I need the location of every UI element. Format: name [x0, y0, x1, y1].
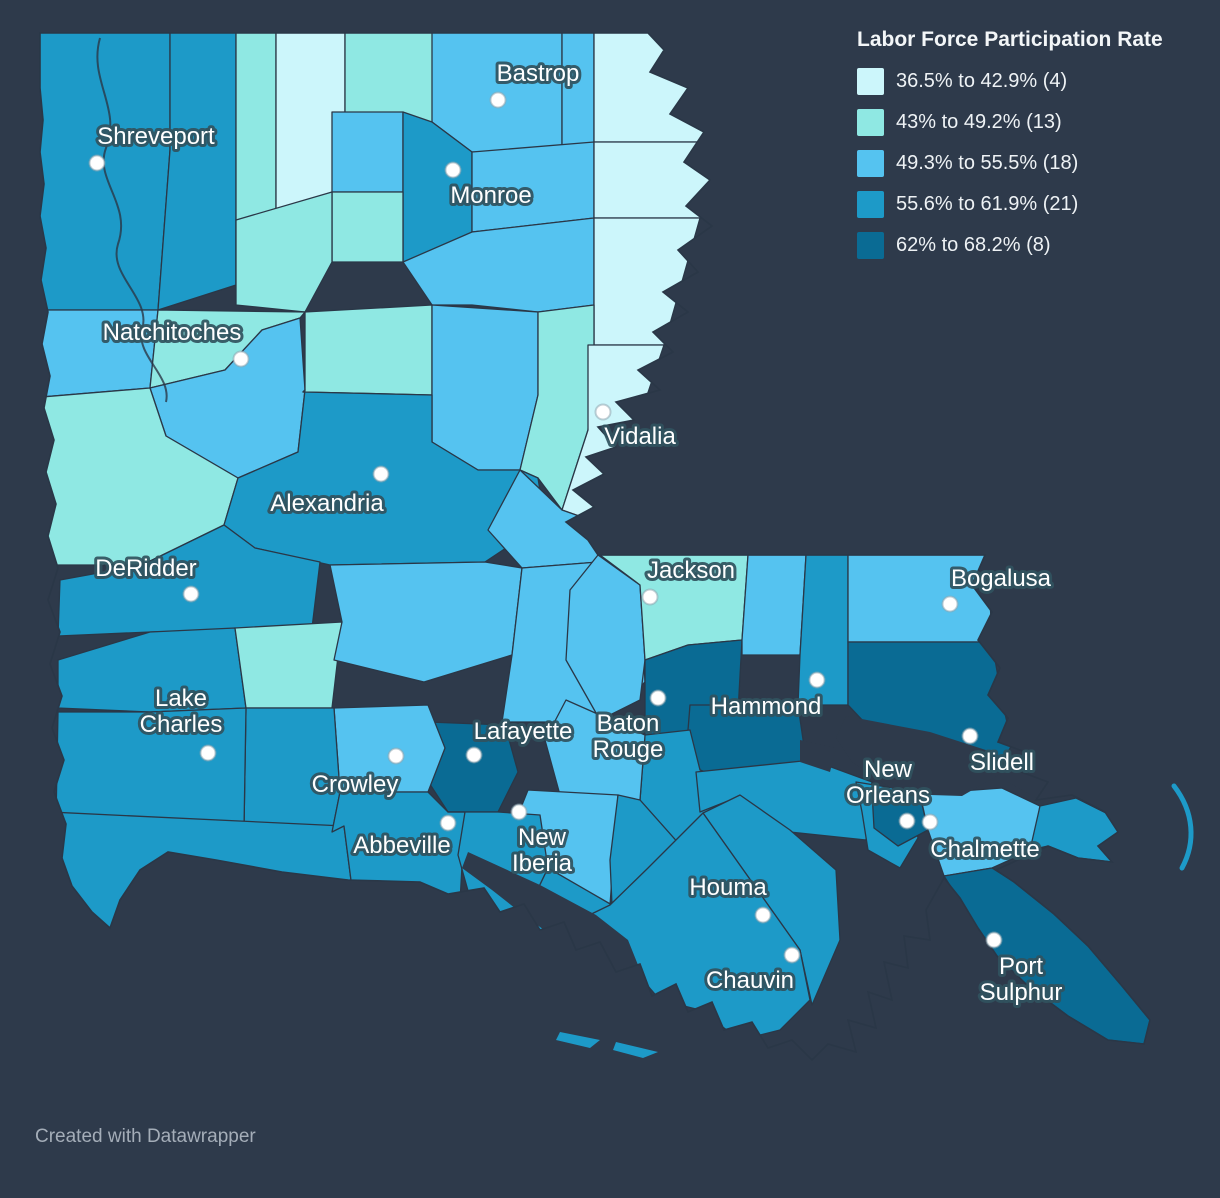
city-dot[interactable]: [184, 587, 199, 602]
parish-region[interactable]: [158, 25, 236, 310]
parish-region[interactable]: [432, 25, 562, 152]
legend-swatch-1: [857, 68, 884, 95]
parish-region[interactable]: [50, 812, 352, 940]
city-label: Jackson: [647, 557, 735, 584]
parish-region[interactable]: [944, 868, 1150, 1044]
legend-item: 55.6% to 61.9% (21): [857, 191, 1217, 218]
datawrapper-credit: Created with Datawrapper: [35, 1126, 256, 1148]
city-dot[interactable]: [810, 673, 825, 688]
city-label: Lafayette: [474, 718, 573, 745]
city-dot[interactable]: [201, 746, 216, 761]
city-dot[interactable]: [446, 163, 461, 178]
parish-region[interactable]: [1030, 798, 1120, 862]
city-label: Baton: [597, 710, 660, 737]
parish-region[interactable]: [303, 305, 432, 395]
city-label: New: [864, 756, 913, 783]
parish-region[interactable]: [235, 622, 342, 708]
legend-label-5: 62% to 68.2% (8): [896, 232, 1051, 259]
barrier-island: [613, 1042, 658, 1058]
legend-label-2: 43% to 49.2% (13): [896, 109, 1062, 136]
legend: Labor Force Participation Rate 36.5% to …: [857, 28, 1217, 273]
city-dot[interactable]: [234, 352, 249, 367]
city-dot[interactable]: [900, 814, 915, 829]
city-label: Iberia: [512, 850, 573, 877]
city-label: Sulphur: [980, 979, 1063, 1006]
parish-region[interactable]: [244, 708, 340, 832]
city-label: Charles: [140, 711, 223, 738]
legend-swatch-5: [857, 232, 884, 259]
city-dot[interactable]: [90, 156, 105, 171]
legend-item: 62% to 68.2% (8): [857, 232, 1217, 259]
parish-region[interactable]: [594, 25, 730, 142]
city-label: DeRidder: [95, 555, 196, 582]
city-label: Chauvin: [706, 967, 794, 994]
legend-item: 36.5% to 42.9% (4): [857, 68, 1217, 95]
city-label: Vidalia: [604, 423, 676, 450]
city-dot[interactable]: [596, 405, 611, 420]
parish-region[interactable]: [742, 555, 806, 655]
barrier-island: [556, 1032, 600, 1048]
city-dot[interactable]: [987, 933, 1002, 948]
city-label: Slidell: [970, 749, 1034, 776]
legend-item: 43% to 49.2% (13): [857, 109, 1217, 136]
city-label: Chalmette: [930, 836, 1039, 863]
legend-label-4: 55.6% to 61.9% (21): [896, 191, 1078, 218]
legend-title: Labor Force Participation Rate: [857, 28, 1217, 52]
legend-label-1: 36.5% to 42.9% (4): [896, 68, 1067, 95]
city-label: Bogalusa: [951, 565, 1052, 592]
city-dot[interactable]: [651, 691, 666, 706]
city-dot[interactable]: [491, 93, 506, 108]
parish-region[interactable]: [432, 305, 538, 470]
legend-swatch-4: [857, 191, 884, 218]
parish-region[interactable]: [332, 792, 465, 938]
chandeleur-islands-arc: [1174, 786, 1191, 868]
city-label: Orleans: [846, 782, 930, 809]
city-dot[interactable]: [943, 597, 958, 612]
city-dot[interactable]: [389, 749, 404, 764]
city-dot[interactable]: [785, 948, 800, 963]
city-label: New: [518, 824, 567, 851]
parish-region[interactable]: [58, 628, 246, 712]
city-label: Natchitoches: [103, 319, 242, 346]
city-label: Abbeville: [353, 832, 450, 859]
parish-region[interactable]: [562, 25, 594, 152]
legend-swatch-2: [857, 109, 884, 136]
parish-region[interactable]: [594, 218, 700, 345]
city-label: Monroe: [450, 182, 531, 209]
city-label: Port: [999, 953, 1043, 980]
parish-region[interactable]: [330, 562, 522, 682]
city-dot[interactable]: [467, 748, 482, 763]
parish-region[interactable]: [332, 112, 403, 192]
city-label: Houma: [689, 874, 767, 901]
city-dot[interactable]: [512, 805, 527, 820]
city-dot[interactable]: [923, 815, 938, 830]
city-label: Crowley: [312, 771, 399, 798]
city-label: Rouge: [593, 736, 664, 763]
city-label: Hammond: [711, 693, 822, 720]
legend-label-3: 49.3% to 55.5% (18): [896, 150, 1078, 177]
city-dot[interactable]: [756, 908, 771, 923]
parish-region[interactable]: [332, 192, 403, 262]
city-label: Alexandria: [270, 490, 384, 517]
city-label: Shreveport: [97, 123, 215, 150]
city-dot[interactable]: [374, 467, 389, 482]
legend-item: 49.3% to 55.5% (18): [857, 150, 1217, 177]
city-dot[interactable]: [441, 816, 456, 831]
city-label: Bastrop: [497, 60, 580, 87]
city-marker: Vidalia: [596, 405, 677, 451]
city-dot[interactable]: [643, 590, 658, 605]
city-label: Lake: [155, 685, 207, 712]
city-dot[interactable]: [963, 729, 978, 744]
legend-swatch-3: [857, 150, 884, 177]
